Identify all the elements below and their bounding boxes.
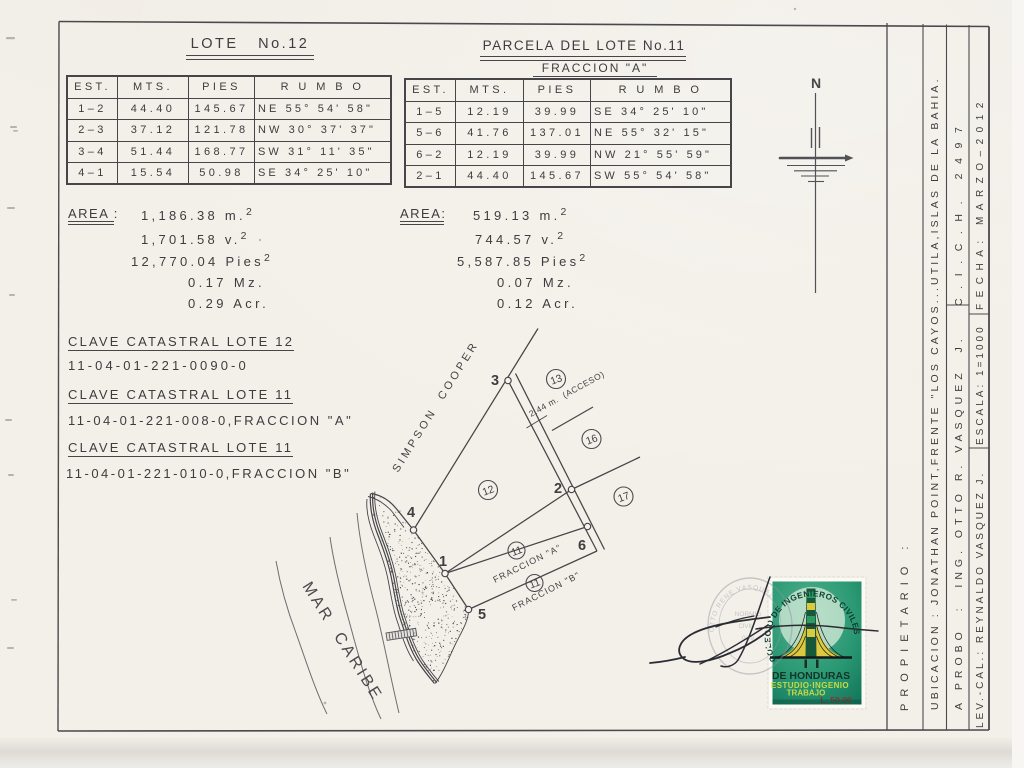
- svg-text:FRACCION "B": FRACCION "B": [510, 570, 581, 613]
- svg-text:13: 13: [549, 372, 564, 387]
- svg-text:17: 17: [616, 490, 631, 505]
- svg-text:2.44 m. (ACCESO): 2.44 m. (ACCESO): [527, 369, 606, 419]
- svg-text:1: 1: [439, 554, 447, 570]
- svg-text:3: 3: [491, 373, 499, 389]
- svg-text:2: 2: [554, 481, 562, 497]
- svg-text:6: 6: [578, 538, 586, 554]
- svg-text:16: 16: [584, 432, 599, 447]
- svg-text:N: N: [811, 75, 821, 91]
- svg-text:SIMPSON COOPER: SIMPSON COOPER: [390, 339, 481, 475]
- svg-text:12: 12: [481, 483, 496, 498]
- svg-text:5: 5: [478, 607, 486, 623]
- svg-text:4: 4: [407, 505, 415, 521]
